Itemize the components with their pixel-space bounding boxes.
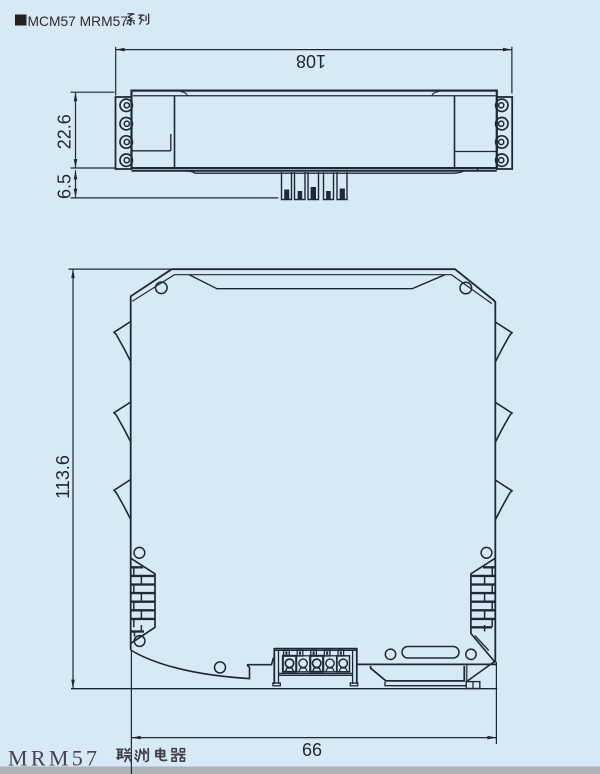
- svg-text:113.6: 113.6: [53, 455, 73, 499]
- svg-text:22.6: 22.6: [54, 114, 74, 149]
- svg-text:6.5: 6.5: [54, 174, 74, 199]
- svg-text:MCM57 MRM57: MCM57 MRM57: [28, 14, 128, 29]
- svg-text:66: 66: [302, 740, 322, 760]
- svg-text:MRM57: MRM57: [8, 746, 100, 771]
- svg-text:108: 108: [296, 51, 326, 71]
